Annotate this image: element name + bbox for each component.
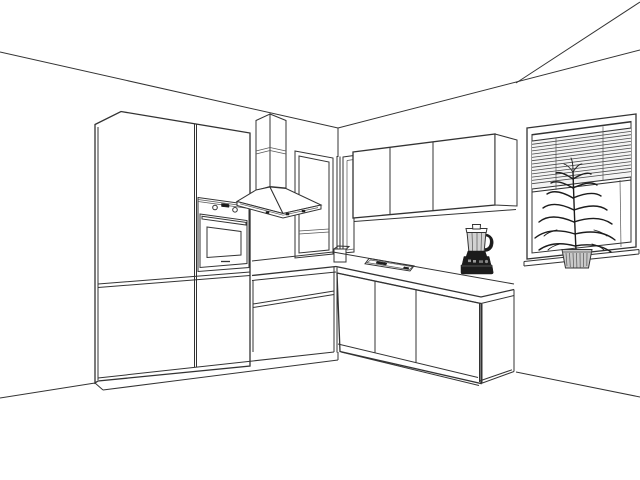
left-counter-front-edge: [252, 267, 336, 276]
left-counter-thickness: [252, 272, 336, 281]
upper-cabinet-end-panel: [495, 134, 517, 206]
blender-collar: [466, 251, 487, 257]
ceiling-edge-left-wall: [0, 52, 338, 128]
right-cabinet-front: [337, 273, 481, 384]
upper-wall-cabinet: [353, 134, 517, 222]
left-counter-back-edge: [252, 252, 333, 261]
corner-post-base-box: [334, 249, 346, 262]
floor-edge-right-wall: [516, 372, 640, 397]
plant-pot: [562, 250, 592, 269]
kitchen-3d-render: [0, 0, 640, 480]
floor-edge-left-wall: [0, 383, 95, 398]
corner-front-edge: [334, 267, 337, 353]
blender-jar: [467, 232, 486, 253]
ceiling-crease: [516, 2, 640, 83]
blender-lid-cap: [473, 225, 481, 230]
drawer-seam: [253, 291, 334, 308]
blender[interactable]: [461, 225, 493, 275]
base-cabinet-run-left: [252, 252, 337, 353]
window-with-blinds: [524, 114, 639, 266]
upper-cabinet-front: [353, 134, 495, 218]
blender-handle: [485, 234, 493, 252]
right-end-panel: [480, 290, 515, 384]
cooktop-inset[interactable]: [365, 259, 414, 272]
ceiling-edge-right-wall: [338, 50, 640, 128]
built-in-oven[interactable]: [198, 198, 249, 272]
